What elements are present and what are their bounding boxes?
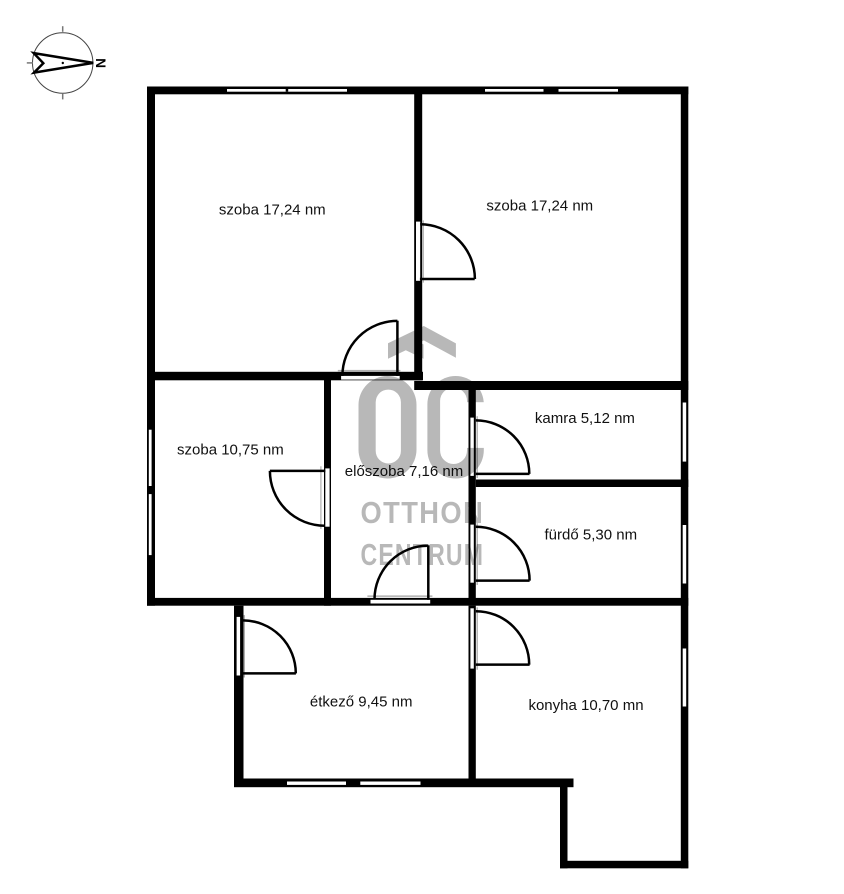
- svg-text:N: N: [93, 58, 108, 68]
- svg-text:CENTRUM: CENTRUM: [361, 538, 485, 572]
- svg-text:fürdő 5,30 nm: fürdő 5,30 nm: [545, 527, 638, 544]
- svg-text:szoba 17,24 nm: szoba 17,24 nm: [486, 197, 593, 214]
- svg-text:OTTHON: OTTHON: [361, 496, 485, 530]
- svg-text:kamra 5,12 nm: kamra 5,12 nm: [535, 410, 635, 427]
- svg-text:konyha 10,70 mn: konyha 10,70 mn: [528, 697, 643, 714]
- svg-text:szoba 17,24 nm: szoba 17,24 nm: [219, 201, 326, 218]
- svg-text:szoba 10,75 nm: szoba 10,75 nm: [177, 441, 284, 458]
- svg-text:étkező 9,45 nm: étkező 9,45 nm: [310, 694, 413, 711]
